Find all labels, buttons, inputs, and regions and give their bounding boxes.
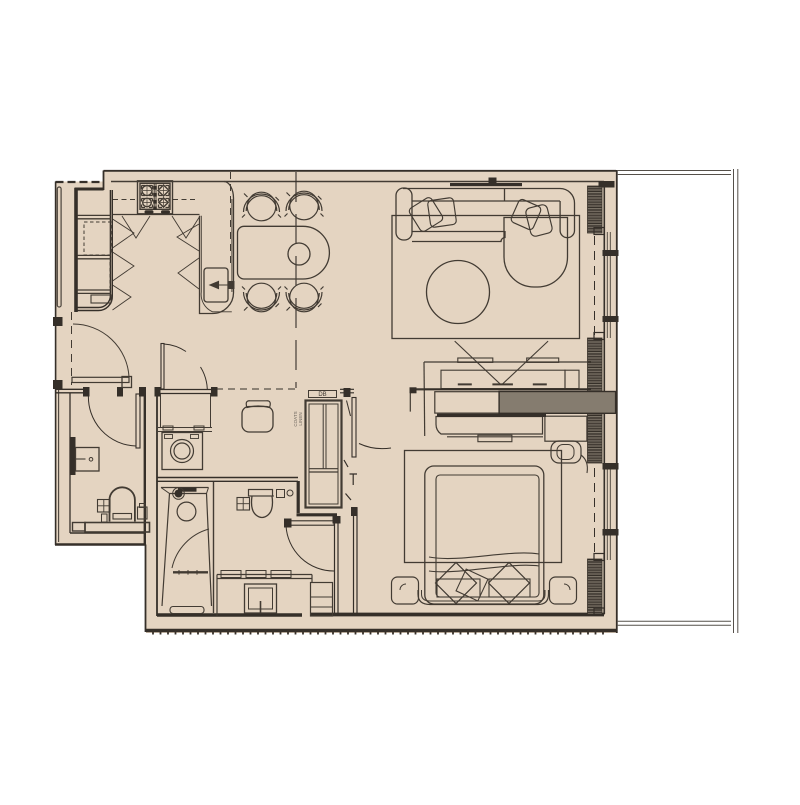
svg-text:LINEN: LINEN bbox=[298, 412, 303, 425]
svg-text:DB: DB bbox=[318, 392, 326, 398]
